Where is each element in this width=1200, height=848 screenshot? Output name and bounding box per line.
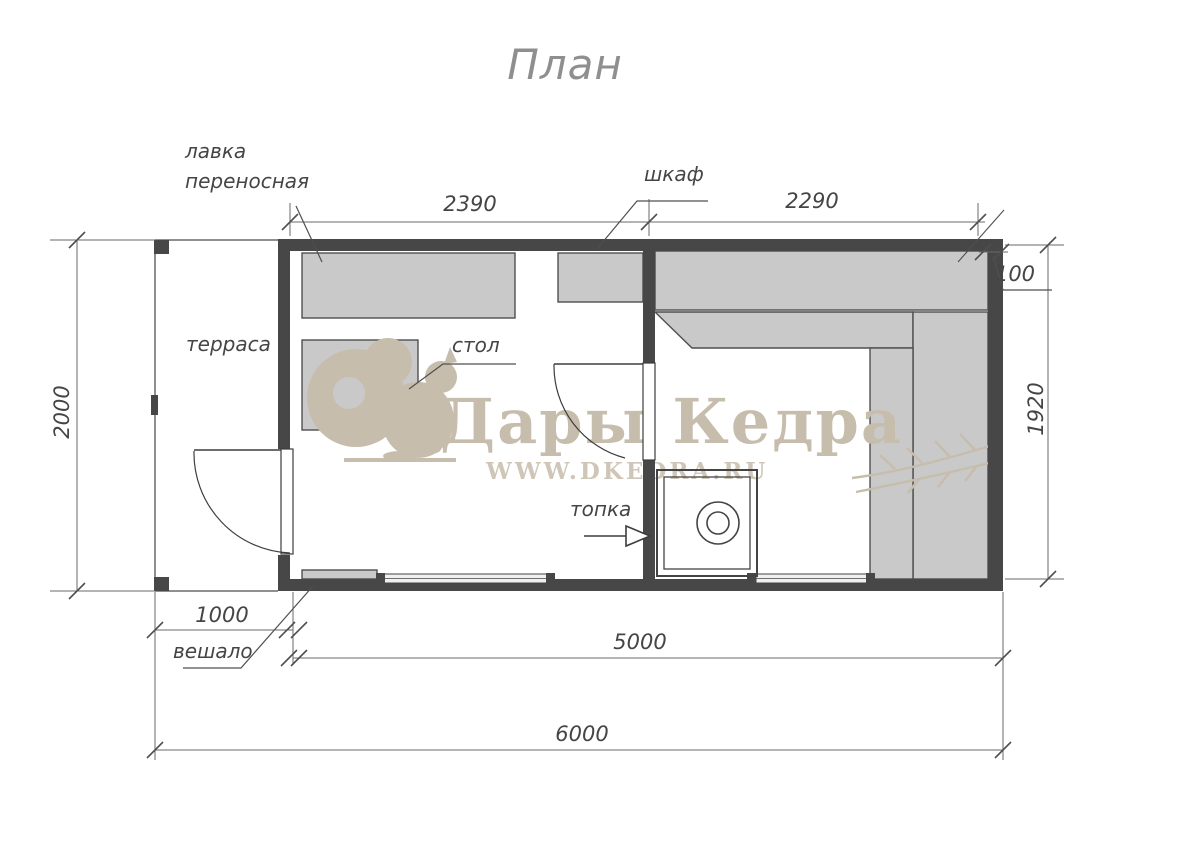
terrace-post-mid <box>151 395 158 415</box>
portable-bench <box>302 253 515 318</box>
label-terrace: терраса <box>186 333 271 355</box>
firebox-arrow-icon <box>584 526 650 546</box>
watermark-brand: Дары Кедра <box>440 385 903 458</box>
label-table: стол <box>452 334 500 356</box>
wall-left-lower <box>278 555 290 591</box>
dim-interior-depth: 1920 <box>1024 364 1048 454</box>
sauna-right-bench-step <box>870 348 913 579</box>
cabinet <box>558 253 643 302</box>
label-firebox: топка <box>570 498 631 520</box>
label-portable-bench-line1: лавка <box>185 140 246 162</box>
dim-room-right-width: 2290 <box>767 189 857 213</box>
wall-partition-upper <box>643 251 655 363</box>
floor-plan-canvas: Дары Кедра WWW.DKEDRA.RU <box>0 0 1200 848</box>
sauna-door-leaf <box>643 363 655 460</box>
dim-terrace-width: 1000 <box>177 603 267 627</box>
dim-total-width: 6000 <box>537 722 627 746</box>
dim-total-depth: 2000 <box>50 367 74 457</box>
sauna-second-bench <box>655 312 913 348</box>
wall-partition-lower <box>643 460 655 579</box>
sauna-top-bench <box>655 251 988 310</box>
watermark-site: WWW.DKEDRA.RU <box>485 458 768 485</box>
floor-plan-drawing: Дары Кедра WWW.DKEDRA.RU <box>0 0 1200 848</box>
terrace-post-bottom <box>154 577 169 591</box>
entrance-door-swing <box>194 451 290 553</box>
label-hanger: вешало <box>173 640 253 662</box>
dim-room-left-width: 2390 <box>425 192 515 216</box>
entrance-door-leaf <box>281 449 293 554</box>
wall-top <box>278 239 1003 251</box>
wall-right <box>988 239 1003 591</box>
label-cabinet: шкаф <box>644 163 704 185</box>
plan-title: План <box>455 40 675 89</box>
wall-left-upper <box>278 239 290 449</box>
sauna-right-bench <box>913 312 988 579</box>
hanger-rail <box>302 570 377 579</box>
terrace-post-top <box>154 240 169 254</box>
dim-building-width: 5000 <box>595 630 685 654</box>
label-portable-bench-line2: переносная <box>185 170 309 192</box>
dim-wall-thickness: 100 <box>985 262 1045 286</box>
